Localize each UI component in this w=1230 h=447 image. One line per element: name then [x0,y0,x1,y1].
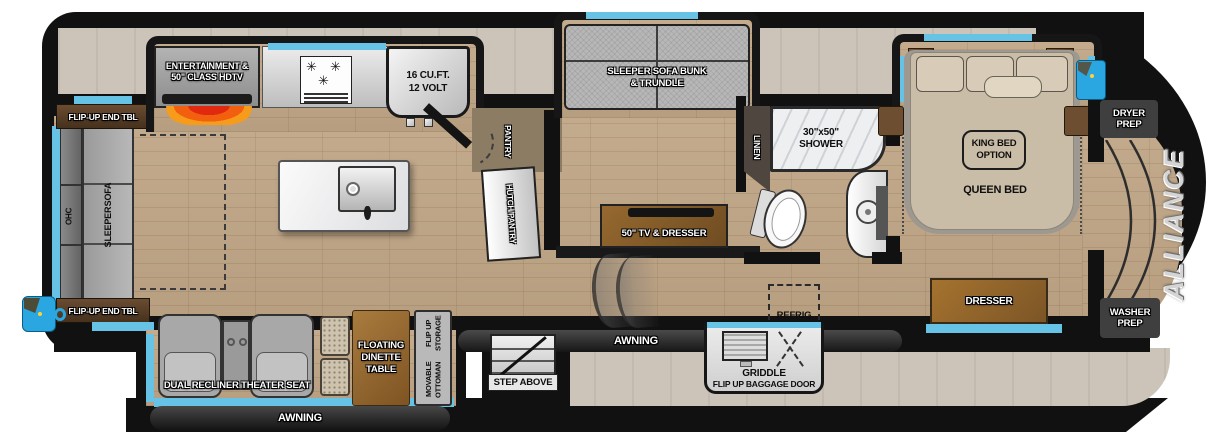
tv-dresser-label: 50" TV & DRESSER [600,222,728,244]
slide-travel-outline [140,134,226,290]
bunk-slide-window [586,12,698,19]
dinette-table: FLOATINGDINETTETABLE [352,310,410,406]
dresser-slide-accent [926,324,1062,333]
cupholder-icon [227,338,235,346]
hutch-pantry: HUTCH/PANTRY [481,166,541,262]
nightstand-left [878,106,904,136]
flip-up-end-table-top: FLIP-UP END TBL [56,104,150,129]
dinette-chair-1 [320,316,350,356]
fireplace-icon [166,106,252,125]
theater-slide-accent-left [146,334,154,402]
wall-kitchen-bunk [544,110,560,250]
vanity-backsplash [876,186,888,240]
cooktop-icon: ✳︎ ✳︎ ✳︎ [300,56,352,104]
awning-rear-label: AWNING [150,407,450,429]
bed-slide-window [924,34,1032,41]
griddle-box-accent [707,322,821,328]
cupholder-icon-2 [239,338,247,346]
tv-icon [162,94,252,104]
queen-bed-label: QUEEN BED [935,182,1055,198]
griddle-icon [722,331,768,361]
fridge-foot-left [406,118,415,127]
floorplan-canvas: AWNING OHC SLEEPERSOFA FLIP-UP END TBL F… [0,0,1230,447]
pillow-1 [916,56,964,92]
theater-seat-label: DUAL RECLINER THEATER SEAT [158,376,316,394]
linen-label: LINEN [748,116,766,178]
shower: 30"x50"SHOWER [770,106,886,172]
sink-drain-icon [346,182,360,196]
rear-utility-ring [54,308,66,321]
sleeper-sofa-label: SLEEPERSOFA [86,150,130,280]
vanity-drain-dot [865,209,871,215]
brand-lettering: ALLIANCE [1146,98,1202,350]
front-utility-dot [1090,74,1094,78]
wall-bath-bed-bottom [886,236,900,264]
rear-bottom-window [92,322,154,331]
step-above-label-box: STEP ABOVE [488,374,558,391]
bed-cushion [984,76,1042,98]
counter-window [268,43,386,50]
rear-top-window [74,96,132,104]
awning-main-label: AWNING [576,331,696,350]
pantry-label: PANTRY [500,112,516,170]
ohc-label: OHC [58,180,80,252]
tv-dresser-tv-icon [628,208,714,217]
bedroom-dresser: DRESSER [930,278,1048,324]
flip-up-end-table-bottom: FLIP-UP END TBL [56,298,150,323]
fridge-foot-right [424,118,433,127]
dinette-chair-2 [320,358,350,396]
movable-ottoman: MOVABLE OTTOMANFLIP UP STORAGE [414,310,452,406]
faucet-icon [364,206,371,220]
rear-utility-dot [38,312,42,316]
lower-skirt [556,348,1170,406]
king-bed-option-box: KING BEDOPTION [962,130,1026,170]
wall-bath-bottom-left [744,252,820,264]
nightstand-right [1064,106,1090,136]
griddle-label: GRIDDLE FLIP UP BAGGAGE DOOR [705,364,823,392]
bunk-sofa-label: SLEEPER SOFA BUNK& TRUNDLE [564,56,750,100]
